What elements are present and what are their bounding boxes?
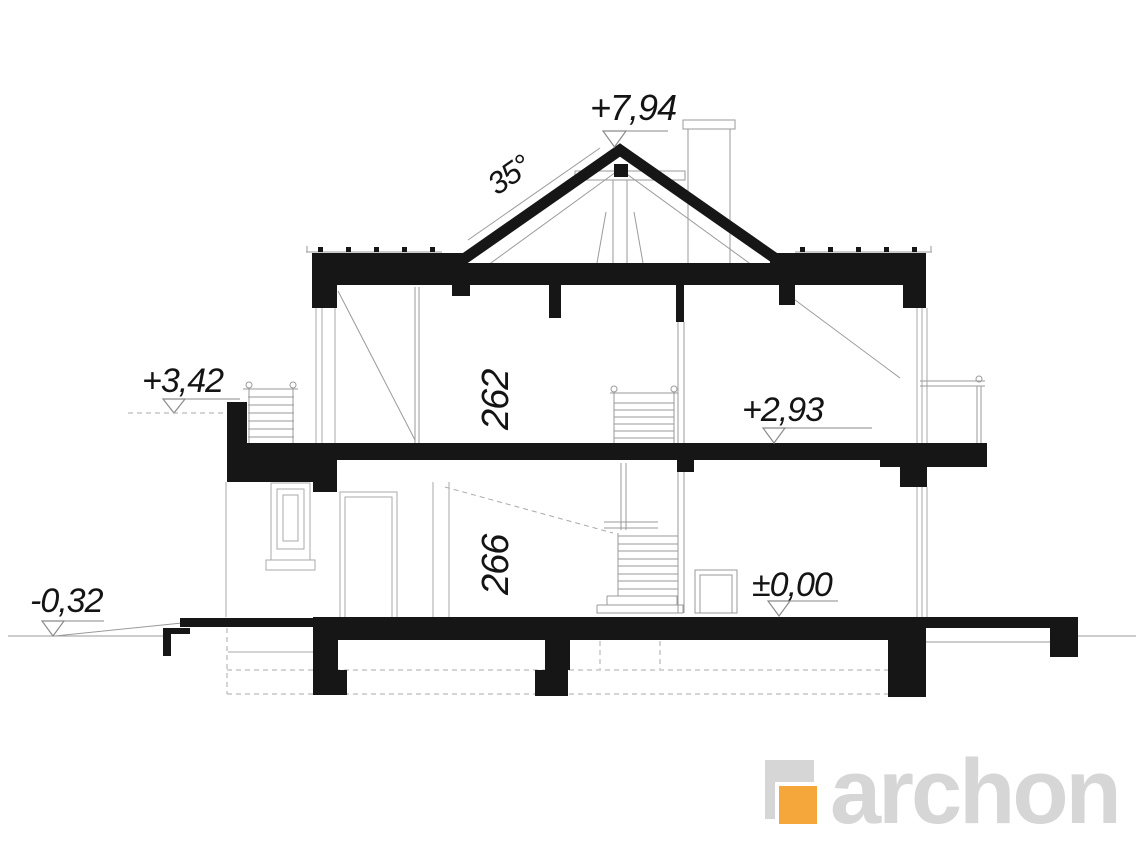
terrain-level-label: -0,32 xyxy=(30,582,104,620)
roof-angle-label: 35° xyxy=(481,148,538,202)
eaves-bands xyxy=(312,253,926,322)
floor-slab xyxy=(227,402,987,492)
logo-orange-square xyxy=(779,786,817,824)
upper-floor-height-label: 262 xyxy=(475,369,517,431)
ground-floor-level-label: ±0,00 xyxy=(752,566,833,604)
ridge-level-label: +7,94 xyxy=(590,87,676,128)
left-balcony-railing xyxy=(243,382,298,447)
ground-floor-height-label: 266 xyxy=(475,533,517,596)
cross-section-drawing: +7,94 35° +3,42 +2,93 ±0,00 -0,32 262 26… xyxy=(0,0,1138,854)
right-balcony-railing xyxy=(920,376,985,447)
stairwell-railing xyxy=(610,386,678,443)
ground-slab-and-foundations xyxy=(163,617,1078,697)
archon-logo: archon xyxy=(765,741,1119,843)
upper-floor-level-label: +2,93 xyxy=(742,391,824,429)
eaves-battens xyxy=(306,246,932,252)
balcony-level-label: +3,42 xyxy=(142,362,224,400)
logo-wordmark: archon xyxy=(830,741,1119,843)
labels: +7,94 35° +3,42 +2,93 ±0,00 -0,32 262 26… xyxy=(30,87,833,620)
fireplace xyxy=(695,570,737,613)
